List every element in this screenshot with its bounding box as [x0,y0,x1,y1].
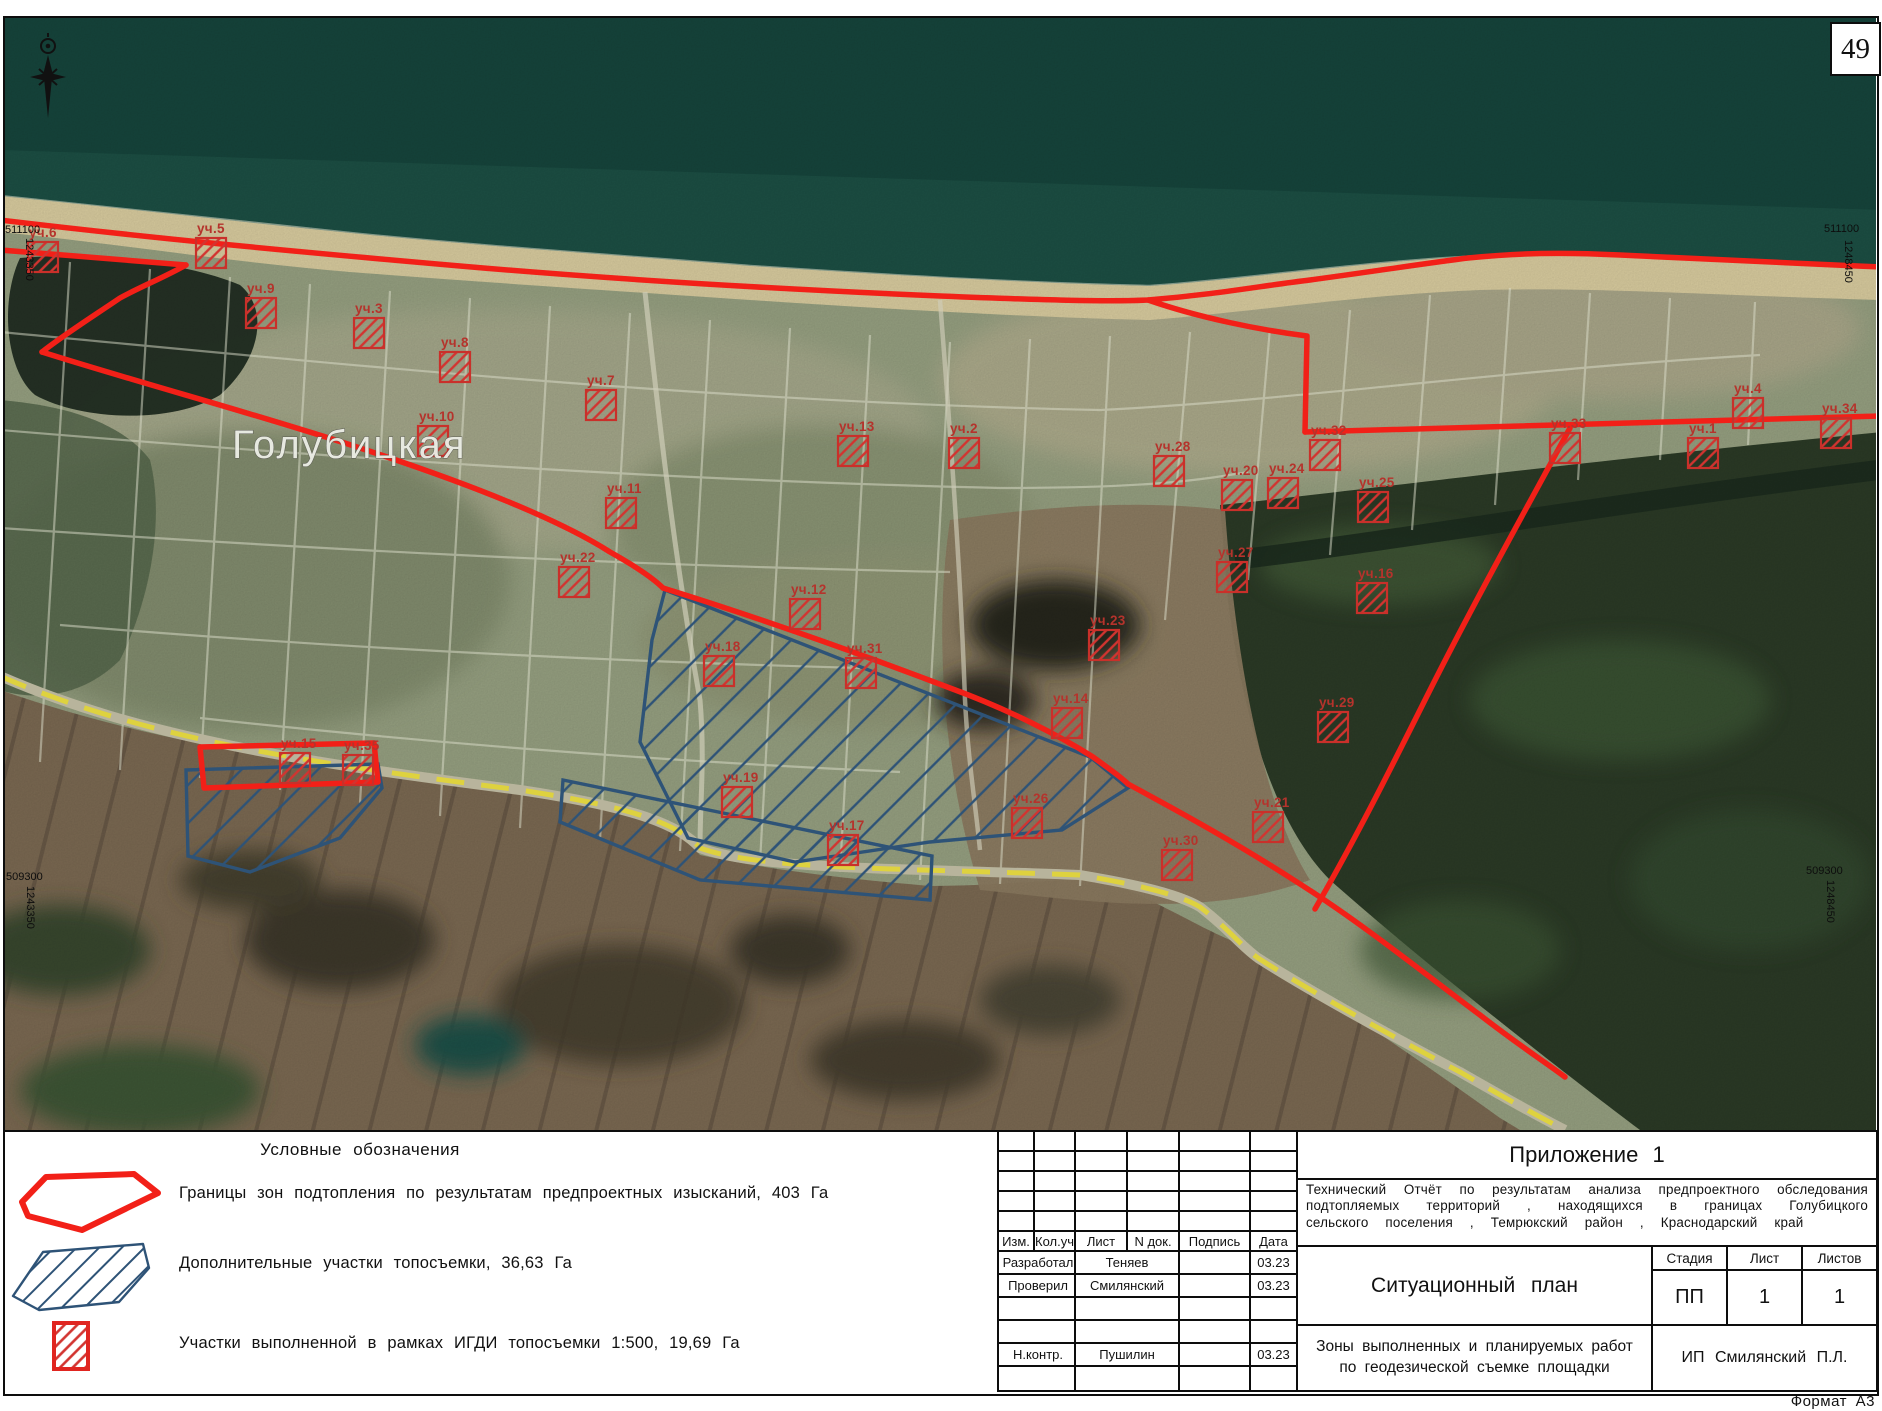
col-header: Подпись [1180,1232,1251,1252]
sheets-header: Листов [1803,1247,1876,1269]
signature-cell [1180,1275,1251,1298]
project-description: Технический Отчёт по результатам анализа… [1298,1180,1876,1247]
survey-plot-label: уч.24 [1269,461,1305,476]
survey-plot-label: уч.9 [247,281,275,296]
igdi-topo-hatch-icon [51,1320,91,1372]
survey-plot-label: уч.25 [1359,475,1395,490]
coordinate-label: 1248450 [1842,240,1854,283]
survey-plot-label: уч.12 [791,582,827,597]
signature-cell [1076,1321,1180,1344]
col-header: Кол.уч [1035,1232,1076,1252]
survey-plot-label: уч.13 [839,419,875,434]
signature-header-row: Изм. Кол.уч Лист N док. Подпись Дата [999,1232,1296,1252]
survey-plot-label: уч.8 [441,335,469,350]
flood-zone-outline-icon [15,1170,165,1236]
coordinate-label: 511100 [1824,223,1859,235]
signature-row [999,1321,1296,1344]
appendix-title: Приложение 1 [1298,1132,1876,1180]
additional-topo-hatch-icon [7,1238,157,1318]
drawing-title: Ситуационный план [1298,1247,1653,1324]
legend-item-text: Границы зон подтопления по результатам п… [179,1184,828,1203]
drawing-sheet: уч.6уч.5уч.9уч.3уч.8уч.7уч.10уч.11уч.22у… [0,0,1882,1411]
survey-plot-marker: уч.1 [1688,421,1718,468]
coordinate-label: 1243350 [24,886,36,929]
survey-plot-marker: уч.3 [354,301,384,348]
signature-table: Изм. Кол.уч Лист N док. Подпись Дата Раз… [997,1130,1298,1392]
survey-plot-label: уч.28 [1155,439,1191,454]
survey-plot-label: уч.35 [344,738,380,753]
survey-plot-label: уч.21 [1254,795,1290,810]
survey-plot-label: уч.11 [607,481,642,496]
survey-plot-marker: уч.9 [246,281,276,328]
survey-plot-label: уч.14 [1053,691,1089,706]
coordinate-label: 1248450 [1824,880,1836,923]
stage-sheet-value-row: ПП 1 1 [1653,1271,1876,1324]
signature-cell: Пушилин [1076,1344,1180,1367]
survey-plot-label: уч.19 [723,770,759,785]
survey-plot-label: уч.4 [1734,381,1762,396]
signature-cell: 03.23 [1251,1252,1296,1275]
coordinate-label: 509300 [6,871,43,883]
survey-plot-label: уч.34 [1822,401,1858,416]
bottom-band: Условные обозначения Границы зон подтопл… [3,1130,1878,1392]
survey-plot-label: уч.22 [560,550,596,565]
survey-plot-marker: уч.4 [1733,381,1763,428]
signature-row [999,1298,1296,1321]
survey-plot-marker: уч.7 [586,373,616,420]
signature-row: РазработалТеняев03.23 [999,1252,1296,1275]
legend-title: Условные обозначения [185,1140,535,1160]
survey-plot-marker: уч.5 [196,221,226,268]
signature-cell: Разработал [999,1252,1076,1275]
col-header: Лист [1076,1232,1128,1252]
signature-cell: Теняев [1076,1252,1180,1275]
sheet-header: Лист [1728,1247,1803,1269]
company-name: ИП Смилянский П.Л. [1653,1326,1876,1390]
title-block: Изм. Кол.уч Лист N док. Подпись Дата Раз… [997,1130,1878,1392]
signature-cell: Проверил [999,1275,1076,1298]
survey-plot-label: уч.15 [281,736,317,751]
signature-cell: Н.контр. [999,1344,1076,1367]
photo-grain [4,17,1876,1130]
survey-plot-label: уч.3 [355,301,383,316]
title-block-right: Приложение 1 Технический Отчёт по резуль… [1298,1130,1878,1392]
survey-plot-label: уч.10 [419,409,455,424]
signature-cell [1251,1321,1296,1344]
survey-plot-label: уч.17 [829,818,865,833]
survey-plot-marker: уч.11 [606,481,642,528]
stage-sheet-header-row: Стадия Лист Листов [1653,1247,1876,1271]
survey-plot-marker: уч.8 [440,335,470,382]
signature-cell [999,1321,1076,1344]
signature-cell [999,1298,1076,1321]
survey-plot-label: уч.5 [197,221,225,236]
signature-cell [1076,1298,1180,1321]
signature-cell [1180,1298,1251,1321]
survey-plot-label: уч.26 [1013,791,1049,806]
survey-plot-label: уч.27 [1218,545,1254,560]
survey-plot-label: уч.32 [1311,423,1347,438]
signature-cell: 03.23 [1251,1275,1296,1298]
col-header: N док. [1128,1232,1180,1252]
legend-item-text: Участки выполненной в рамках ИГДИ топосъ… [179,1334,740,1353]
survey-plot-label: уч.18 [705,639,741,654]
satellite-map: уч.6уч.5уч.9уч.3уч.8уч.7уч.10уч.11уч.22у… [0,0,1882,1130]
format-label: Формат А3 [1730,1393,1875,1410]
signature-cell [1180,1252,1251,1275]
survey-plot-label: уч.23 [1090,613,1126,628]
coordinate-label: 509300 [1806,865,1843,877]
legend-item-text: Дополнительные участки топосъемки, 36,63… [179,1254,572,1273]
signature-cell [1180,1344,1251,1367]
survey-plot-label: уч.16 [1358,566,1394,581]
survey-plot-label: уч.30 [1163,833,1199,848]
survey-plot-label: уч.1 [1689,421,1717,436]
survey-plot-label: уч.31 [847,641,883,656]
coordinate-label: 1243350 [23,238,35,281]
signature-cell: 03.23 [1251,1344,1296,1367]
signature-row: Н.контр.Пушилин03.23 [999,1344,1296,1367]
survey-plot-label: уч.29 [1319,695,1355,710]
survey-plot-label: уч.33 [1551,416,1587,431]
sheet-value: 1 [1728,1271,1803,1324]
signature-cell: Смилянский [1076,1275,1180,1298]
coordinate-label: 511100 [5,224,40,236]
survey-plot-label: уч.2 [950,421,978,436]
page-number-value: 49 [1841,33,1870,66]
stage-header: Стадия [1653,1247,1728,1269]
col-header: Изм. [999,1232,1035,1252]
survey-plot-label: уч.20 [1223,463,1259,478]
signature-row: ПроверилСмилянский03.23 [999,1275,1296,1298]
sheet-subtitle: Зоны выполненных и планируемых работ по … [1298,1326,1653,1390]
town-label: Голубицкая [232,423,467,467]
survey-plot-marker: уч.2 [949,421,979,468]
sheets-value: 1 [1803,1271,1876,1324]
signature-cell [1251,1298,1296,1321]
stage-value: ПП [1653,1271,1728,1324]
legend: Условные обозначения Границы зон подтопл… [3,1130,1001,1396]
col-header: Дата [1251,1232,1296,1252]
survey-plot-label: уч.7 [587,373,615,388]
page-number: 49 [1830,22,1881,76]
signature-cell [1180,1321,1251,1344]
